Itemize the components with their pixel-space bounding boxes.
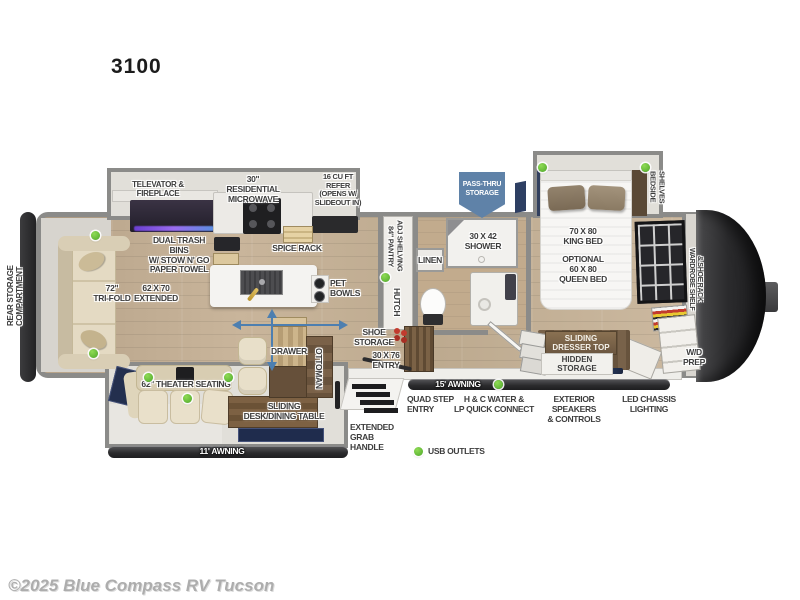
ottoman-label: OTTOMAN <box>313 340 323 396</box>
wd-prep-label: W/D PREP <box>676 348 712 368</box>
entry-platform <box>340 378 405 410</box>
slide-arrow-horizontal <box>240 324 340 326</box>
queen-bed-label: OPTIONAL 60 x 80 QUEEN BED <box>553 255 613 284</box>
usb-dot-theater-center <box>183 394 192 403</box>
usb-dot-bed-left <box>538 163 547 172</box>
dining-chair-1 <box>238 337 267 365</box>
refer-label: 16 CU FT REFER (OPENS W/ SLIDEOUT IN) <box>314 173 362 208</box>
toilet-tank <box>423 314 443 325</box>
nightstand-right <box>631 170 647 216</box>
shower-label: 30 x 42 SHOWER <box>458 232 508 252</box>
usb-legend-dot <box>414 447 423 456</box>
led-lighting-label: LED CHASSIS LIGHTING <box>618 395 680 415</box>
vanity-mirror <box>505 274 516 300</box>
pass-thru-window <box>515 181 526 213</box>
floorplan-canvas: 3100 REAR STORAGE COMPARTMENT 72" TRI-FO… <box>0 0 800 600</box>
wardrobe-label: WARDROBE SHELF & SHOE RACK <box>687 228 703 330</box>
pantry-label: 84" PANTRY ADJ SHELVING <box>386 217 403 275</box>
grab-handle-label: EXTENDED GRAB HANDLE <box>350 423 396 452</box>
vanity-sink <box>478 298 491 311</box>
bedroom-window <box>635 220 688 304</box>
dining-window <box>238 428 324 442</box>
usb-dot-awning <box>494 380 503 389</box>
usb-legend-label: USB OUTLETS <box>428 447 498 457</box>
usb-dot-bed-right <box>641 163 650 172</box>
bathroom-wall-left <box>413 214 418 335</box>
arrow-down-tip <box>267 362 277 371</box>
usb-dot-sofa-bottom <box>89 349 98 358</box>
theater-seat-1 <box>138 390 168 424</box>
refrigerator-icon <box>312 216 358 233</box>
trash-bins <box>213 253 239 265</box>
copyright-text: ©2025 Blue Compass RV Tucson <box>8 576 274 596</box>
usb-dot-theater-left <box>144 373 153 382</box>
trash-label: DUAL TRASH BINS W/ STOW N' GO PAPER TOWE… <box>146 236 212 275</box>
water-connect-label: H & C WATER & LP QUICK CONNECT <box>452 395 536 415</box>
spice-label: SPICE RACK <box>272 244 322 254</box>
bathroom-wall-right <box>526 214 531 338</box>
awning-15-label: 15' AWNING <box>420 380 496 390</box>
pet-bowl-2 <box>314 291 325 302</box>
arrow-right-tip <box>339 320 348 330</box>
entry-label: 30 x 76 ENTRY <box>362 351 410 371</box>
sink-drain <box>259 279 265 285</box>
bed-pillow-right <box>587 185 625 211</box>
trash-microwave-box <box>214 237 240 251</box>
stove-burners <box>249 204 257 212</box>
hutch-label: HUTCH <box>391 281 401 323</box>
speakers-label: EXTERIOR SPEAKERS & CONTROLS <box>534 395 614 424</box>
dresser-label: SLIDING DRESSER TOP <box>545 331 617 355</box>
televator-label: TELEVATOR & FIREPLACE <box>112 180 204 198</box>
usb-dot-sofa-top <box>91 231 100 240</box>
extended-label: 62 x 70 EXTENDED <box>130 284 182 304</box>
dining-chair-2 <box>238 367 267 395</box>
quad-steps <box>352 384 386 389</box>
spice-rack-icon <box>283 226 313 243</box>
fireplace-glow <box>134 226 214 231</box>
bedside-shelves-label: BEDSIDE SHELVES <box>648 155 665 219</box>
pet-bowls-label: PET BOWLS <box>330 279 366 299</box>
slide-arrow-vertical <box>271 316 273 364</box>
hidden-storage-label: HIDDEN STORAGE <box>541 353 613 375</box>
arrow-up-tip <box>267 309 277 318</box>
shoe-storage-label: SHOE STORAGE <box>350 328 398 348</box>
bed-pillow-left <box>547 185 586 212</box>
desk-label: SLIDING DESK/DINING TABLE <box>243 402 325 422</box>
microwave-label: 30" RESIDENTIAL MICROWAVE <box>220 175 286 204</box>
pet-bowl-1 <box>314 278 325 289</box>
usb-dot-hutch <box>381 273 390 282</box>
arrow-left-tip <box>232 320 241 330</box>
linen-label: LINEN <box>413 256 447 266</box>
king-bed-label: 70 x 80 KING BED <box>553 227 613 247</box>
usb-dot-theater-right <box>224 373 233 382</box>
awning-11-label: 11' AWNING <box>180 447 264 457</box>
floorplan-title: 3100 <box>111 55 162 79</box>
rear-storage-label: REAR STORAGE COMPARTMENT <box>6 239 24 353</box>
shower-drain <box>478 256 485 263</box>
drawer-label: DRAWER <box>264 347 314 357</box>
sofa-backrest <box>58 238 72 368</box>
grab-handle <box>335 381 340 409</box>
